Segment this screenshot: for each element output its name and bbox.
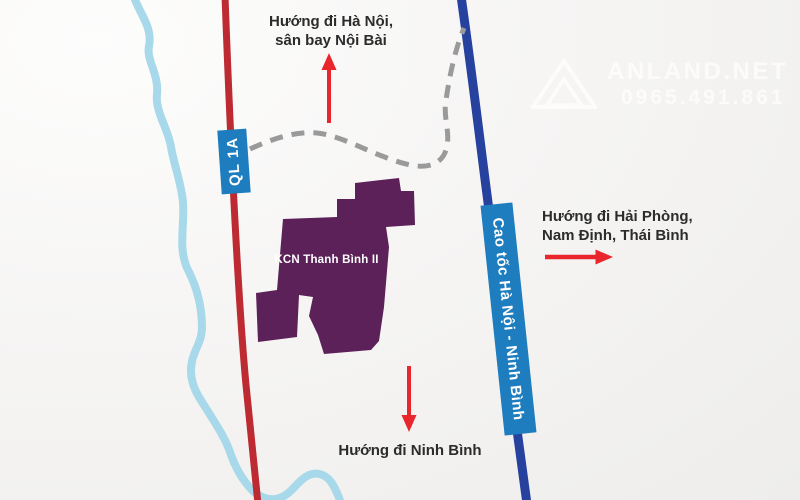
north-arrow-head bbox=[322, 53, 337, 70]
south-arrow-head bbox=[402, 415, 417, 432]
industrial-zone-polygon bbox=[256, 178, 415, 354]
direction-label-east-line2: Nam Định, Thái Bình bbox=[542, 226, 762, 245]
south-arrow bbox=[402, 366, 417, 432]
direction-label-north-line2: sân bay Nội Bài bbox=[250, 31, 412, 50]
industrial-zone-label: KCN Thanh Bình II bbox=[256, 254, 397, 266]
north-arrow bbox=[322, 53, 337, 123]
east-arrow bbox=[545, 250, 613, 265]
direction-label-east-line1: Hướng đi Hải Phòng, bbox=[542, 207, 762, 226]
road-label-ql1a-text: QL 1A bbox=[224, 137, 244, 187]
map-features-layer bbox=[0, 0, 800, 500]
east-arrow-head bbox=[596, 250, 614, 265]
direction-label-north-line1: Hướng đi Hà Nội, bbox=[250, 12, 412, 31]
direction-label-south-line1: Hướng đi Ninh Bình bbox=[330, 441, 490, 460]
national-road-ql1a bbox=[225, 0, 258, 500]
direction-label-east: Hướng đi Hải Phòng, Nam Định, Thái Bình bbox=[542, 207, 762, 245]
road-label-ql1a: QL 1A bbox=[217, 129, 250, 195]
map-canvas: QL 1A Cao tốc Hà Nội - Ninh Bình KCN Tha… bbox=[0, 0, 800, 500]
direction-label-south: Hướng đi Ninh Bình bbox=[330, 441, 490, 460]
direction-label-north: Hướng đi Hà Nội, sân bay Nội Bài bbox=[250, 12, 412, 50]
